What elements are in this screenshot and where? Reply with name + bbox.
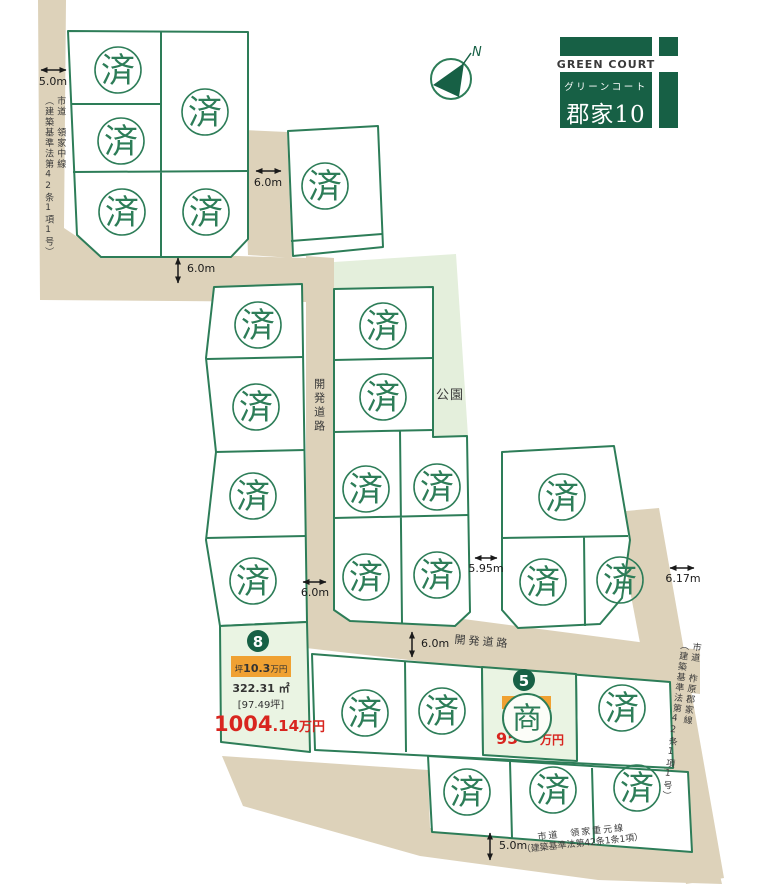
sold-stamp: 済 <box>444 769 490 815</box>
logo-name-en: GREEN COURT <box>560 56 652 72</box>
sold-stamp: 済 <box>539 474 585 520</box>
road-left-name-law: （建築基準法第42条1項1号） <box>42 96 54 258</box>
plot5-badge-number: 5 <box>519 672 529 690</box>
sold-stamp: 済 <box>614 765 660 811</box>
dim-label-6: 6.17m <box>661 573 705 586</box>
road-left-name: 市道 領家中線 （建築基準法第42条1項1号） <box>42 96 66 258</box>
sold-stamp: 済 <box>414 464 460 510</box>
svg-text:済: 済 <box>603 561 637 601</box>
svg-text:済: 済 <box>239 388 273 428</box>
dev-road-vertical-label: 開発道路 <box>312 378 325 434</box>
sold-stamp: 済 <box>99 189 145 235</box>
svg-text:済: 済 <box>366 307 400 347</box>
svg-text:済: 済 <box>605 689 639 729</box>
sold-stamp: 済 <box>95 47 141 93</box>
sold-stamp: 済 <box>98 118 144 164</box>
dim-label-4: 6.0m <box>293 587 337 600</box>
park-label: 公園 <box>436 389 464 404</box>
negotiating-stamp-text: 商 <box>512 702 542 737</box>
sold-stamp: 済 <box>302 163 348 209</box>
plot8-badge-number: 8 <box>253 633 263 651</box>
svg-text:済: 済 <box>348 694 382 734</box>
sold-stamp: 済 <box>342 690 388 736</box>
logo-name-kana: グリーンコート <box>560 72 652 93</box>
logo-side-square <box>659 37 678 56</box>
sold-stamp: 済 <box>530 767 576 813</box>
site-plan: 済済済済済済済済済済済済済済済済済済済済済済済済済 8 5 95 万円 商 <box>0 0 760 884</box>
svg-text:済: 済 <box>545 478 579 518</box>
sold-stamp: 済 <box>343 466 389 512</box>
sold-stamp: 済 <box>360 374 406 420</box>
road-left-name-main: 市道 領家中線 <box>54 96 66 258</box>
dim-label-3: 6.0m <box>187 263 227 276</box>
sold-stamp: 済 <box>599 685 645 731</box>
sold-stamp: 済 <box>414 552 460 598</box>
svg-text:済: 済 <box>366 378 400 418</box>
svg-text:済: 済 <box>526 563 560 603</box>
sold-stamp: 済 <box>183 189 229 235</box>
sold-stamp: 済 <box>343 554 389 600</box>
compass: N <box>431 45 482 99</box>
sold-stamp: 済 <box>233 384 279 430</box>
svg-text:済: 済 <box>101 51 135 91</box>
svg-text:済: 済 <box>349 470 383 510</box>
svg-text:済: 済 <box>105 193 139 233</box>
svg-text:済: 済 <box>536 771 570 811</box>
compass-needle <box>433 63 464 97</box>
sold-stamp: 済 <box>360 303 406 349</box>
plot8-info: 坪10.3万円 322.31 ㎡ [97.49坪] 1004.14万円 <box>214 656 308 736</box>
sold-stamp: 済 <box>597 557 643 603</box>
svg-text:済: 済 <box>349 558 383 598</box>
compass-north-label: N <box>472 45 482 60</box>
svg-text:済: 済 <box>620 769 654 809</box>
svg-text:済: 済 <box>420 556 454 596</box>
logo-side-bar <box>659 72 678 128</box>
svg-text:済: 済 <box>420 468 454 508</box>
svg-text:済: 済 <box>450 773 484 813</box>
logo: GREEN COURT グリーンコート 郡家10 <box>560 37 678 128</box>
road-top-middle <box>244 130 292 258</box>
plot8-area-tsubo: [97.49坪] <box>214 696 308 711</box>
plot8-area-m2: 322.31 ㎡ <box>214 680 308 696</box>
road-dev-vertical <box>306 256 334 642</box>
logo-name-jp: 郡家10 <box>560 95 652 129</box>
sold-stamp: 済 <box>230 558 276 604</box>
plot8-price: 1004.14万円 <box>214 712 308 736</box>
dim-label-8: 5.0m <box>499 840 539 853</box>
svg-text:済: 済 <box>236 562 270 602</box>
sold-stamp: 済 <box>235 302 281 348</box>
plot8-unit-price-tag: 坪10.3万円 <box>231 656 292 677</box>
logo-top-bar <box>560 37 652 56</box>
sold-stamp: 済 <box>520 559 566 605</box>
dim-label-1: 5.0m <box>31 76 75 89</box>
svg-text:済: 済 <box>236 477 270 517</box>
svg-text:済: 済 <box>189 193 223 233</box>
svg-text:済: 済 <box>308 167 342 207</box>
svg-text:済: 済 <box>188 93 222 133</box>
dim-label-7: 6.0m <box>421 638 461 651</box>
dim-label-2: 6.0m <box>246 177 290 190</box>
sold-stamp: 済 <box>230 473 276 519</box>
svg-text:済: 済 <box>104 122 138 162</box>
plot8-badge: 8 <box>247 630 269 652</box>
sold-stamp: 済 <box>419 688 465 734</box>
svg-text:済: 済 <box>425 692 459 732</box>
svg-text:済: 済 <box>241 306 275 346</box>
dim-label-5: 5.95m <box>464 563 508 576</box>
sold-stamp: 済 <box>182 89 228 135</box>
